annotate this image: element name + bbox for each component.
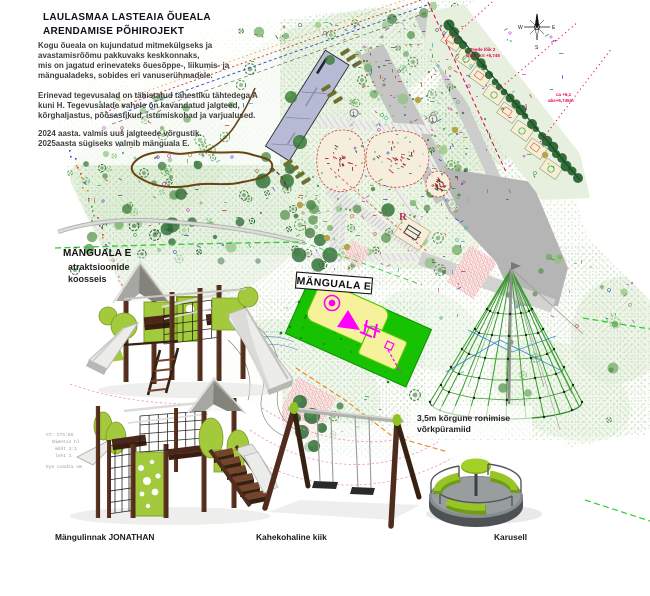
- svg-text:mõõt 1:1: mõõt 1:1: [55, 446, 77, 452]
- svg-text:kuni H. Tegevusalade vahele on: kuni H. Tegevusalade vahele on kavandatu…: [38, 101, 240, 110]
- svg-text:R: R: [399, 211, 408, 223]
- svg-text:ca +6,1: ca +6,1: [556, 92, 572, 97]
- svg-text:Erinevad tegevusalad on tähis: Erinevad tegevusalad on tähistatud tähes…: [38, 91, 258, 100]
- svg-text:MÄNGUALA E: MÄNGUALA E: [63, 246, 132, 259]
- svg-text:kõrghaljastus, põõsastikud,: kõrghaljastus, põõsastikud, istumiskohad…: [38, 111, 255, 120]
- svg-text:W: W: [518, 25, 523, 31]
- svg-text:leht 1: leht 1: [55, 453, 72, 459]
- svg-text:Kahekohaline kiik: Kahekohaline kiik: [256, 532, 327, 542]
- svg-text:Mnt 2 krt +5,745: Mnt 2 krt +5,745: [466, 53, 500, 58]
- svg-text:abs+6,745m: abs+6,745m: [548, 98, 574, 103]
- svg-text:Mängulinnak JONATHAN: Mängulinnak JONATHAN: [55, 532, 154, 542]
- svg-text:LAULASMAA LASTEAIA ÕUEALA: LAULASMAA LASTEAIA ÕUEALA: [43, 10, 211, 23]
- svg-text:koosseis: koosseis: [68, 274, 107, 284]
- svg-text:3,5m kõrgune ronimise: 3,5m kõrgune ronimise: [417, 413, 510, 423]
- svg-text:Nimetus hl: Nimetus hl: [52, 439, 80, 445]
- svg-text:avastamisrõõmu pakkuvaks keskk: avastamisrõõmu pakkuvaks keskkonnaks,: [38, 51, 199, 60]
- svg-text:mängualadeks, sobides eri vanu: mängualadeks, sobides eri vanuserühmadel…: [38, 71, 213, 80]
- svg-text:atraktsioonide: atraktsioonide: [68, 262, 130, 272]
- svg-text:võrkpüramiid: võrkpüramiid: [417, 424, 471, 434]
- svg-text:kyn condta vm: kyn condta vm: [46, 464, 82, 470]
- svg-text:ARENDAMISE PÕHIROJEKT: ARENDAMISE PÕHIROJEKT: [43, 24, 184, 37]
- svg-text:mis on jagatud erinevateks õue: mis on jagatud erinevateks õuesõppe-, li…: [38, 61, 230, 70]
- svg-text:2025aasta sügiseks valmib mäng: 2025aasta sügiseks valmib mänguala E.: [38, 139, 190, 148]
- svg-text:Kogu õueala on kujundatud mitm: Kogu õueala on kujundatud mitmekülgseks …: [38, 41, 213, 50]
- svg-text:CT: CT1:KG: CT: CT1:KG: [46, 432, 74, 438]
- svg-text:Teede lõik 2: Teede lõik 2: [470, 47, 496, 52]
- svg-text:Karusell: Karusell: [494, 532, 527, 542]
- svg-text:2024 aasta. valmis uus jalgtee: 2024 aasta. valmis uus jalgteede võrgust…: [38, 129, 202, 138]
